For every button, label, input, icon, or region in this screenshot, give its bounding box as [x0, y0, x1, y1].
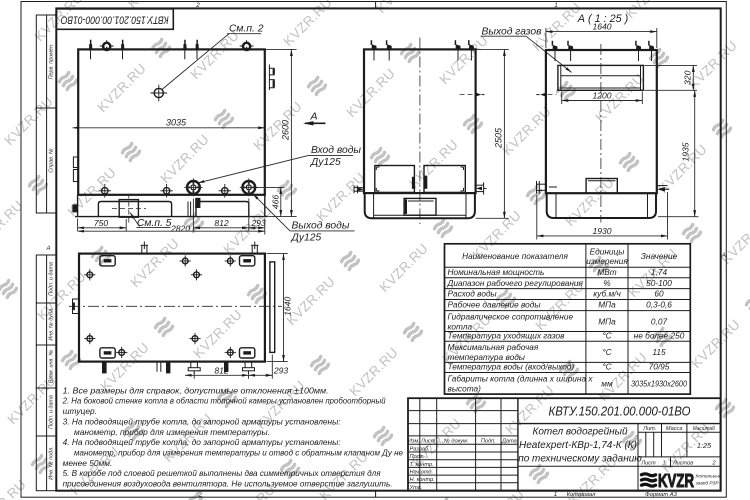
- svg-text:Вход воды: Вход воды: [311, 145, 361, 156]
- svg-text:2600: 2600: [281, 120, 291, 141]
- svg-text:°С: °С: [602, 331, 612, 341]
- svg-text:Инв. № подл.: Инв. № подл.: [48, 446, 54, 479]
- svg-text:2: 2: [711, 460, 716, 466]
- svg-text:МПа: МПа: [598, 300, 616, 310]
- svg-text:температура воды: температура воды: [448, 352, 525, 362]
- svg-text:Наименование показателя: Наименование показателя: [462, 251, 568, 261]
- svg-text:320: 320: [683, 70, 693, 85]
- svg-text:KVZR.RU: KVZR.RU: [281, 0, 335, 49]
- svg-text:Утв.: Утв.: [409, 485, 423, 491]
- svg-text:Инв. № дубл.: Инв. № дубл.: [48, 307, 54, 340]
- svg-text:Масштаб: Масштаб: [693, 426, 716, 432]
- svg-text:штуцер.: штуцер.: [63, 406, 97, 416]
- svg-text:Выход воды: Выход воды: [292, 221, 350, 232]
- svg-text:Взам. инв. №: Взам. инв. №: [48, 350, 54, 384]
- svg-text:1640: 1640: [592, 22, 611, 32]
- svg-text:№ докум.: № докум.: [444, 438, 469, 444]
- svg-text:Ду125: Ду125: [291, 233, 322, 244]
- svg-text:KVZR.RU: KVZR.RU: [158, 132, 212, 186]
- svg-text:Пров.: Пров.: [410, 454, 425, 460]
- svg-text:Дата: Дата: [501, 438, 517, 444]
- svg-text:Подп. и дата: Подп. и дата: [48, 262, 54, 296]
- svg-text:70/95: 70/95: [649, 362, 670, 372]
- svg-text:См.п. 2: См.п. 2: [229, 24, 264, 35]
- svg-text:1: 1: [554, 492, 557, 498]
- svg-text:Максимальная рабочая: Максимальная рабочая: [448, 342, 539, 352]
- svg-text:KVZR.RU: KVZR.RU: [314, 170, 368, 224]
- svg-text:высота): высота): [448, 384, 482, 394]
- svg-text:1: 1: [554, 3, 557, 9]
- svg-text:МВт: МВт: [597, 267, 616, 277]
- svg-text:Подп.: Подп.: [481, 438, 496, 444]
- svg-text:750: 750: [94, 218, 109, 228]
- svg-text:А: А: [45, 246, 50, 252]
- svg-text:КВТУ.150.201.00.000-01ВО: КВТУ.150.201.00.000-01ВО: [549, 404, 691, 419]
- svg-text:2820: 2820: [170, 224, 190, 234]
- svg-text:куб.м/ч: куб.м/ч: [593, 289, 621, 299]
- svg-text:KVZR.RU: KVZR.RU: [437, 33, 491, 87]
- svg-text:3035: 3035: [166, 117, 187, 127]
- svg-text:293: 293: [250, 218, 266, 228]
- svg-text:Единицы: Единицы: [590, 247, 625, 257]
- svg-text:KVZR.RU: KVZR.RU: [377, 241, 431, 295]
- svg-text:KVZR.RU: KVZR.RU: [188, 28, 242, 82]
- svg-text:60: 60: [654, 289, 664, 299]
- svg-text:1: 1: [662, 460, 665, 466]
- svg-text:KVZR: KVZR: [658, 471, 694, 491]
- svg-text:Лит.: Лит.: [642, 426, 656, 432]
- svg-text:А: А: [309, 111, 317, 123]
- svg-text:KVZR.RU: KVZR.RU: [35, 269, 89, 323]
- svg-text:мм: мм: [601, 379, 613, 389]
- svg-text:Температура уходящих газов: Температура уходящих газов: [448, 331, 566, 341]
- svg-text:Котел водогрейный: Котел водогрейный: [532, 427, 628, 438]
- svg-text:KVZR.RU: KVZR.RU: [0, 477, 29, 500]
- svg-text:KVZR.RU: KVZR.RU: [623, 0, 677, 21]
- svg-text:МПа: МПа: [598, 317, 616, 327]
- svg-text:812: 812: [214, 218, 229, 228]
- svg-text:KVZR.RU: KVZR.RU: [344, 66, 398, 120]
- svg-text:Выход газов: Выход газов: [482, 26, 543, 37]
- svg-text:не более 250: не более 250: [634, 331, 685, 341]
- svg-text:°С: °С: [602, 347, 612, 357]
- svg-text:Т. контр.: Т. контр.: [410, 462, 434, 468]
- svg-text:2: 2: [195, 3, 200, 9]
- svg-text:KVZR.RU: KVZR.RU: [689, 317, 743, 371]
- svg-text:Диапазон рабочего регулировани: Диапазон рабочего регулирования: [447, 278, 584, 288]
- svg-text:1. Все размеры для справок, до: 1. Все размеры для справок, допустимые о…: [63, 385, 329, 395]
- svg-text:Гидравлическое сопротивление: Гидравлическое сопротивление: [448, 312, 574, 322]
- svg-text:50-100: 50-100: [646, 278, 672, 288]
- svg-text:КВТУ.150.201.00.000-01ВО: КВТУ.150.201.00.000-01ВО: [61, 13, 169, 25]
- svg-text:KVZR.RU: KVZR.RU: [128, 236, 182, 290]
- svg-text:Листов: Листов: [672, 460, 693, 466]
- svg-text:Справ. №: Справ. №: [48, 148, 54, 173]
- svg-text:манометр, прибор для измерения: манометр, прибор для измерения температу…: [74, 427, 270, 437]
- svg-text:812: 812: [214, 366, 229, 376]
- svg-text:3. На подводящей трубе котла,: 3. На подводящей трубе котла, до запорно…: [63, 417, 341, 427]
- svg-text:Котельный: Котельный: [696, 473, 722, 480]
- svg-text:°С: °С: [602, 362, 612, 372]
- svg-text:Масса: Масса: [666, 426, 683, 432]
- svg-text:Габариты котла (длинна х ширин: Габариты котла (длинна х ширина х: [448, 374, 594, 384]
- svg-text:KVZR.RU: KVZR.RU: [2, 94, 56, 148]
- svg-text:5. В коробе под слоевой решетк: 5. В коробе под слоевой решеткой выполне…: [63, 468, 381, 478]
- svg-text:466: 466: [270, 195, 280, 210]
- svg-text:1930: 1930: [592, 226, 611, 236]
- svg-text:KVZR.RU: KVZR.RU: [191, 307, 245, 361]
- svg-text:завод РЗР: завод РЗР: [695, 481, 720, 487]
- svg-text:манометр, прибор для измерения: манометр, прибор для измерения температу…: [74, 448, 403, 458]
- svg-text:2. На боковой стенке котла в о: 2. На боковой стенке котла в области топ…: [62, 396, 386, 406]
- svg-text:Формат А3: Формат А3: [645, 492, 677, 498]
- svg-text:KVZR.RU: KVZR.RU: [563, 175, 617, 229]
- svg-text:KVZR.RU: KVZR.RU: [221, 203, 275, 257]
- svg-text:0,07: 0,07: [651, 317, 668, 327]
- svg-text:0,3-0,6: 0,3-0,6: [646, 300, 672, 310]
- svg-text:Heatexpert-КВр-1,74-К (К): Heatexpert-КВр-1,74-К (К): [519, 440, 637, 451]
- svg-text:по техническому заданию: по техническому заданию: [518, 453, 642, 464]
- svg-text:KVZR.RU: KVZR.RU: [95, 61, 149, 115]
- svg-text:3035х1930х2600: 3035х1930х2600: [631, 379, 687, 389]
- svg-text:%: %: [603, 278, 611, 288]
- svg-text:Изм.: Изм.: [408, 438, 420, 444]
- svg-text:А: А: [721, 253, 726, 259]
- svg-text:293: 293: [273, 366, 289, 376]
- svg-text:Копировал: Копировал: [567, 492, 597, 498]
- svg-text:KVZR.RU: KVZR.RU: [347, 345, 401, 399]
- svg-text:Разраб.: Разраб.: [410, 446, 430, 452]
- svg-text:4. На подводящей трубе котла,: 4. На подводящей трубе котла, до запорно…: [63, 437, 341, 447]
- svg-text:присоединения воздуховода вент: присоединения воздуховода вентилятора. Н…: [63, 478, 393, 488]
- svg-text:Подп. и дата: Подп. и дата: [48, 395, 54, 429]
- svg-text:115: 115: [652, 347, 666, 357]
- svg-text:2505: 2505: [494, 127, 504, 149]
- svg-text:Ду125: Ду125: [310, 157, 341, 168]
- svg-text:1200: 1200: [592, 91, 611, 101]
- svg-text:Значение: Значение: [641, 251, 678, 261]
- svg-text:Н. контр.: Н. контр.: [410, 477, 435, 483]
- svg-text:1640: 1640: [283, 297, 293, 316]
- svg-text:измерения: измерения: [586, 256, 628, 266]
- svg-text:1:25: 1:25: [697, 441, 712, 450]
- svg-text:2: 2: [197, 492, 202, 498]
- svg-text:Температура воды (вход/выход): Температура воды (вход/выход): [448, 362, 575, 372]
- svg-text:1,74: 1,74: [651, 267, 668, 277]
- svg-text:менее 50мм.: менее 50мм.: [63, 458, 113, 468]
- svg-text:KVZR.RU: KVZR.RU: [473, 487, 527, 500]
- svg-text:Номинальная мощность: Номинальная мощность: [448, 267, 545, 277]
- svg-text:Лист: Лист: [640, 460, 656, 466]
- svg-text:Перв. примен.: Перв. примен.: [48, 44, 54, 80]
- svg-text:KVZR.RU: KVZR.RU: [251, 99, 305, 153]
- svg-text:Нач.отд.: Нач.отд.: [410, 470, 434, 476]
- svg-text:KVZR.RU: KVZR.RU: [0, 198, 26, 252]
- svg-text:KVZR.RU: KVZR.RU: [596, 350, 650, 404]
- svg-text:Рабочее давление воды: Рабочее давление воды: [448, 300, 541, 310]
- svg-text:Расход воды: Расход воды: [448, 289, 497, 299]
- svg-text:1935: 1935: [681, 142, 691, 161]
- svg-text:Лист: Лист: [420, 438, 436, 444]
